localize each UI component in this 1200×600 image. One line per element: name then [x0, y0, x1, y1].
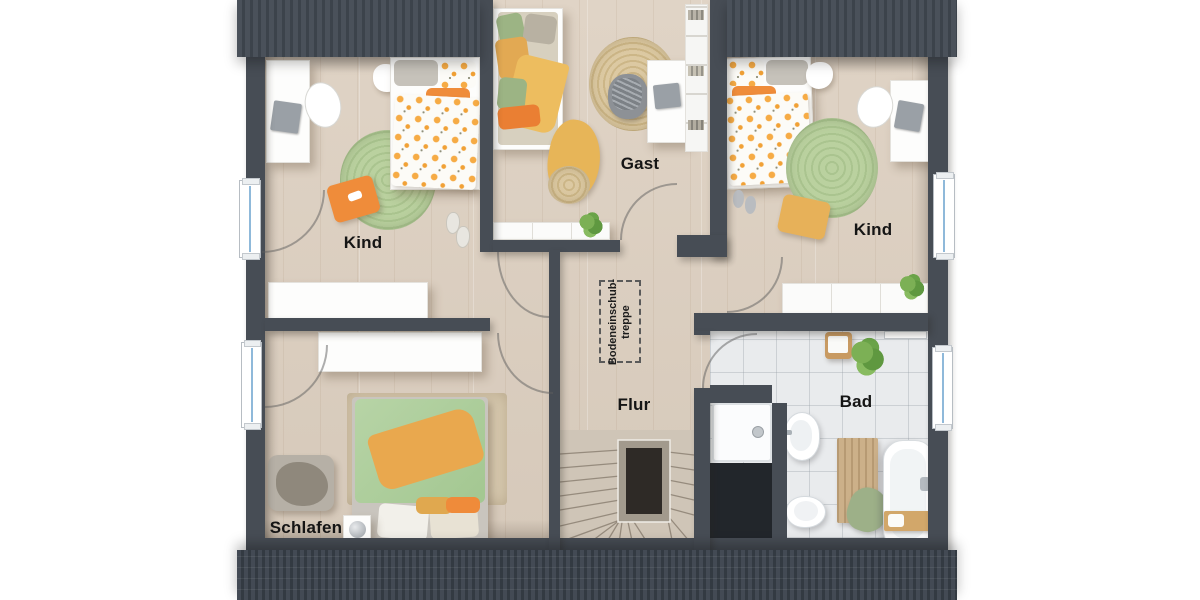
room-label-kind-right: Kind — [854, 220, 893, 240]
wall-flur-east — [694, 388, 710, 550]
roof-band-top-right — [727, 0, 957, 57]
bath-plant — [850, 334, 885, 380]
attic-hatch-label: Bodeneinschub- treppe — [607, 278, 633, 364]
room-label-bad: Bad — [840, 392, 873, 412]
room-label-schlafen: Schlafen — [270, 518, 342, 538]
wall-gast-right — [710, 0, 727, 257]
wall-shower-right — [772, 403, 787, 538]
shaft — [710, 463, 772, 538]
shower-drain — [752, 426, 764, 438]
staircase — [560, 430, 694, 550]
stool-towel — [828, 336, 848, 353]
sideboard — [268, 282, 428, 322]
room-label-gast: Gast — [621, 154, 660, 174]
radiator — [932, 347, 953, 429]
wall-flur-west — [549, 250, 560, 550]
books — [688, 120, 704, 130]
radiator — [241, 342, 262, 428]
roof-band-bottom — [237, 550, 957, 600]
wardrobe — [318, 332, 482, 372]
toilet-lid — [794, 501, 818, 521]
duvet — [391, 94, 481, 190]
cushion-orange — [446, 497, 480, 513]
room-label-flur: Flur — [618, 395, 651, 415]
wall-gast-left — [480, 0, 493, 252]
potted-plant — [578, 210, 604, 240]
clothes-pile — [276, 462, 328, 506]
caddy-towel — [888, 514, 904, 527]
bed-pillow — [766, 60, 808, 85]
wall-bad-top — [694, 313, 928, 331]
floor-plan: Bodeneinschub- treppe — [0, 0, 1200, 600]
wall-left — [246, 55, 265, 550]
roof-band-top-left — [237, 0, 480, 57]
towel-rail — [884, 331, 927, 339]
wall-bottom — [246, 538, 948, 550]
radiator — [933, 174, 955, 258]
books — [688, 66, 704, 76]
bed-pillow — [394, 60, 438, 86]
laptop — [653, 83, 681, 110]
pillow-gray — [522, 13, 558, 45]
books — [688, 10, 704, 20]
bed-pillow — [440, 61, 476, 88]
cushion-orange — [497, 104, 541, 130]
armchair-throw — [612, 78, 642, 110]
laptop — [894, 100, 924, 132]
wall-right — [928, 55, 948, 550]
wall-kindleft-bottom — [265, 318, 490, 331]
radiator — [239, 180, 261, 258]
wall-corner-block — [677, 235, 727, 257]
bed-pillow — [728, 60, 764, 86]
laptop — [270, 100, 302, 134]
table-lamp — [349, 521, 366, 538]
room-label-kind-left: Kind — [344, 233, 383, 253]
jute-pouf — [548, 166, 590, 204]
attic-hatch-outline: Bodeneinschub- treppe — [599, 280, 641, 363]
potted-plant — [898, 272, 926, 302]
sink-basin — [790, 420, 812, 451]
wall-flur-east-upper — [694, 331, 710, 335]
